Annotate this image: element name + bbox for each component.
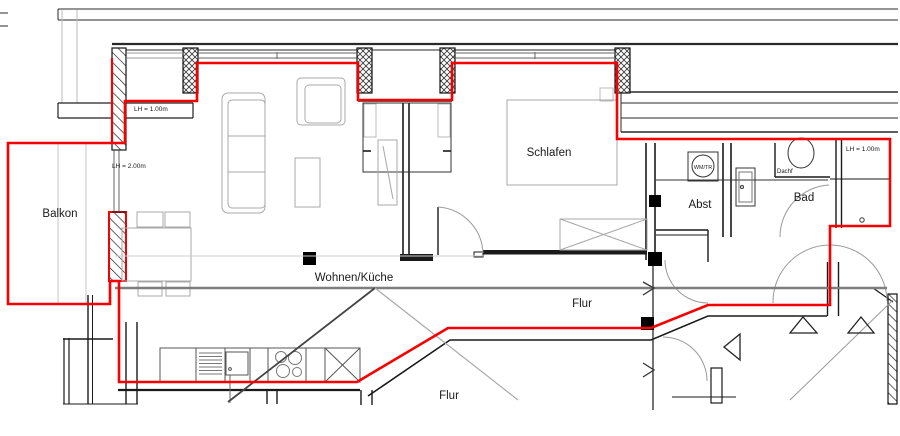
dishwasher [199,353,222,374]
labels: Balkon Wohnen/Küche Schlafen Abst Bad Fl… [42,106,879,402]
wardrobe [560,219,647,250]
door-stop-icon [860,218,864,222]
roof-slope-line [228,288,375,402]
roof-slope-line [375,288,518,400]
post [303,252,316,265]
chair [165,212,190,227]
label-bad: Bad [794,192,814,204]
label-lh-right: LH = 1.00m [846,146,880,153]
floor-plan-drawing: Balkon Wohnen/Küche Schlafen Abst Bad Fl… [0,0,900,436]
label-dachf: Dachf [777,169,793,175]
label-wm-tr: WM/TR [694,165,712,171]
abst-door-arc [665,260,708,303]
sink [226,352,248,375]
flur-lower-door-arc [663,337,707,381]
coffee-table [295,158,320,207]
label-flur-right: Flur [572,298,592,310]
label-schlafen: Schlafen [527,147,572,159]
bed [507,100,617,185]
label-lh-left: LH = 2.00m [112,163,146,170]
label-wohnen-kueche: Wohnen/Küche [315,272,393,284]
pier-right-edge [888,294,897,404]
wall-piers [109,48,897,404]
door-arcs [438,185,887,381]
chair [137,212,163,227]
toilet-icon [788,138,814,168]
kitchen-xbox [325,348,360,382]
slope-triangle-icon [724,334,740,360]
label-abst: Abst [688,199,712,211]
roof-slope-line [790,300,893,400]
post [648,252,662,266]
kitchen-counter [160,348,360,403]
slope-triangle-icon [790,317,817,333]
floor-plan-canvas: Balkon Wohnen/Küche Schlafen Abst Bad Fl… [0,0,900,436]
dining-table [122,228,191,281]
section-arrow-icon [643,363,654,377]
post [649,195,661,207]
structural-posts [303,195,662,330]
door-knob-icon [741,186,744,189]
label-lh-top-left: LH = 1.00m [134,106,168,113]
furniture [122,78,647,296]
bedroom-door-arc [438,207,483,253]
pier-left-bottom [109,212,126,281]
label-flur-bottom: Flur [439,390,459,402]
label-balkon: Balkon [42,208,77,220]
